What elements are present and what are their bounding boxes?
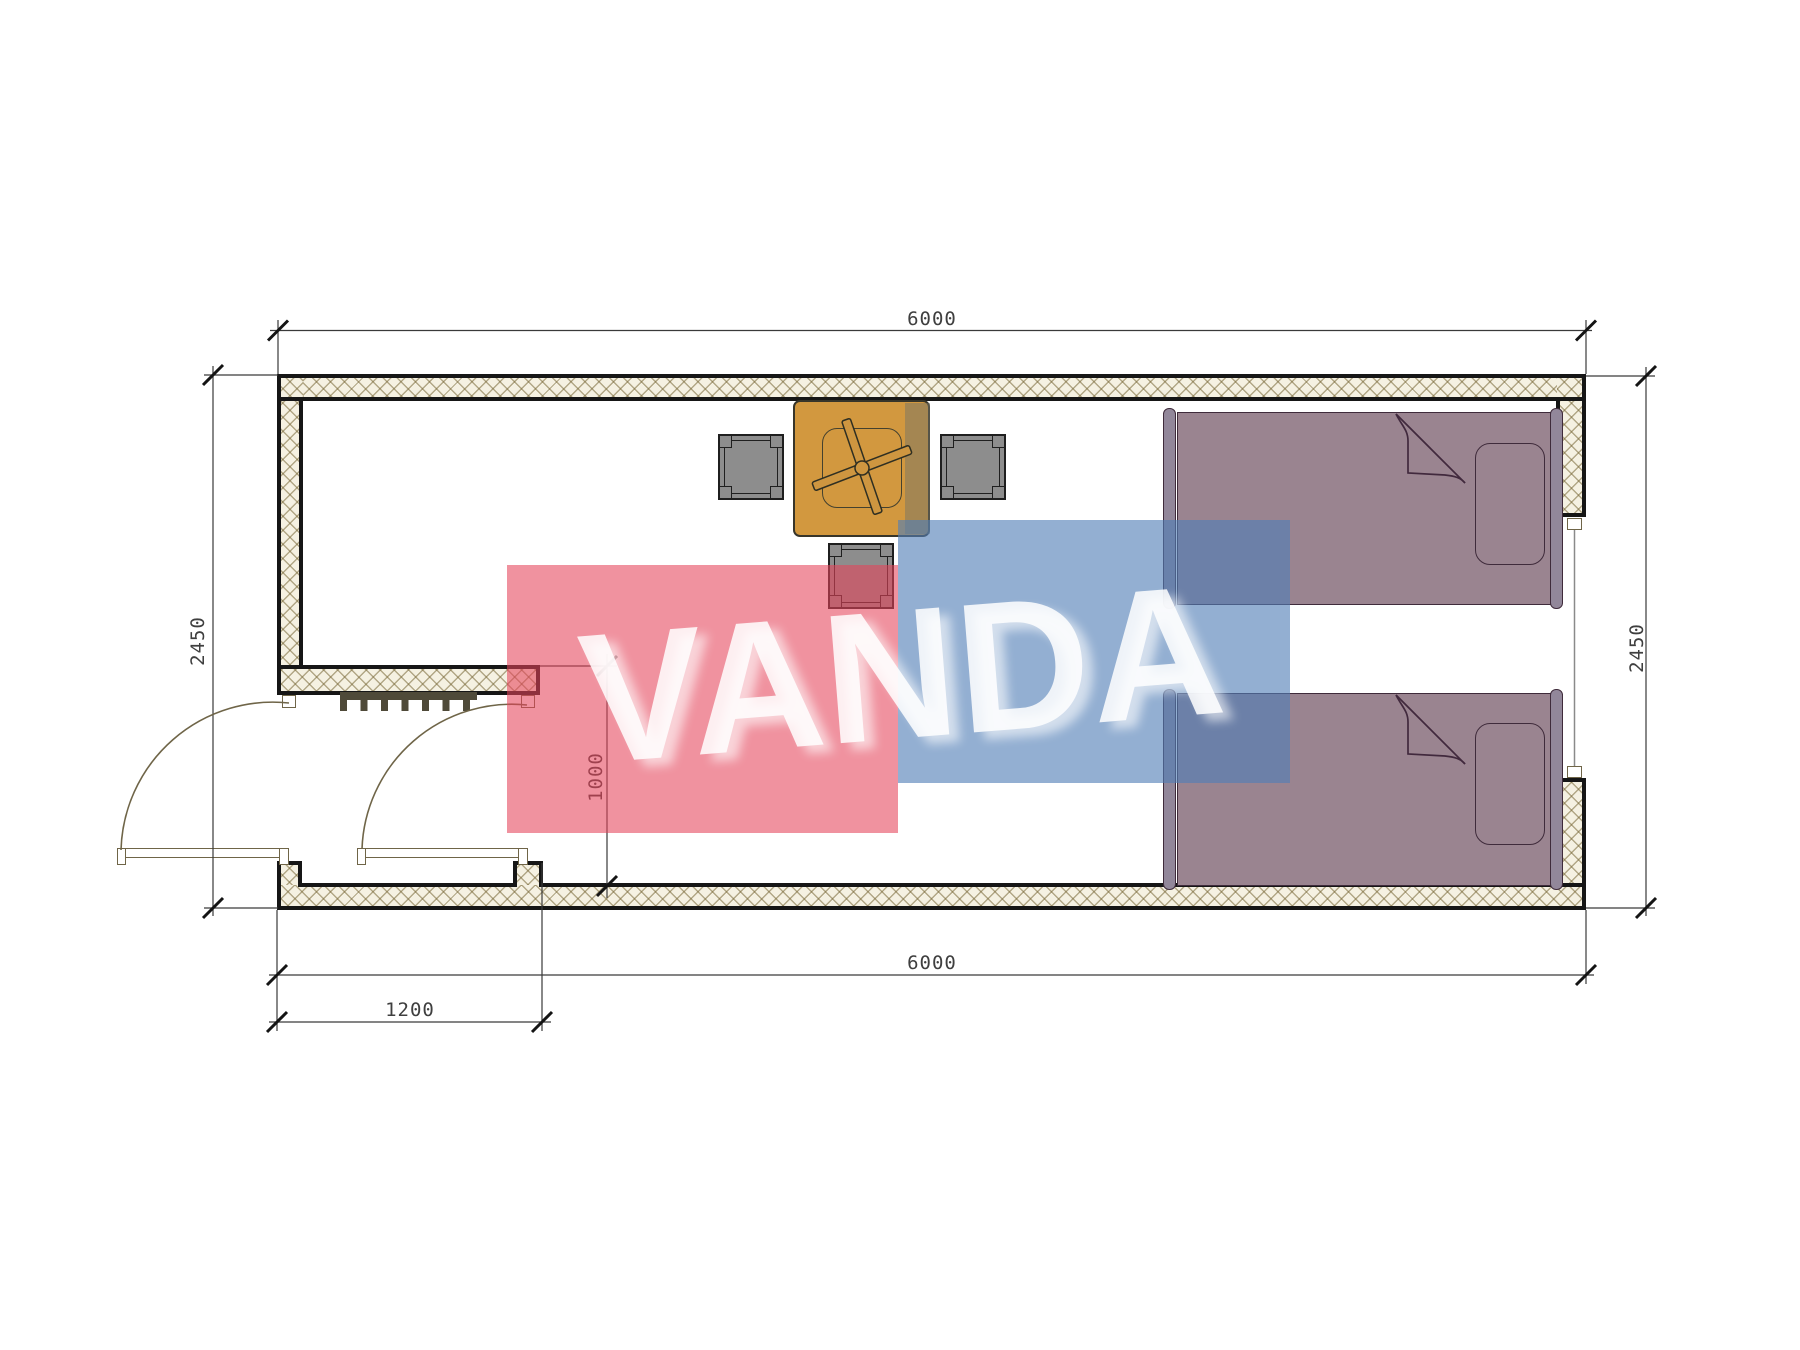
floor-plan-canvas: 6000 6000 1200 2450 2450 1000 VANDA <box>0 0 1800 1350</box>
dim-entry-opening: 1200 <box>350 1000 470 1020</box>
bed-lower-blanket-fold <box>1396 695 1465 764</box>
bed-upper-blanket-fold <box>1396 414 1465 483</box>
dim-left-height: 2450 <box>188 581 208 701</box>
dim-top-width: 6000 <box>872 309 992 329</box>
door-swing-arc-right <box>362 704 527 849</box>
dim-bottom-width: 6000 <box>872 953 992 973</box>
table-cross-legs <box>812 418 912 515</box>
door-swing-arc-left <box>121 702 289 850</box>
dim-right-height: 2450 <box>1627 588 1647 708</box>
